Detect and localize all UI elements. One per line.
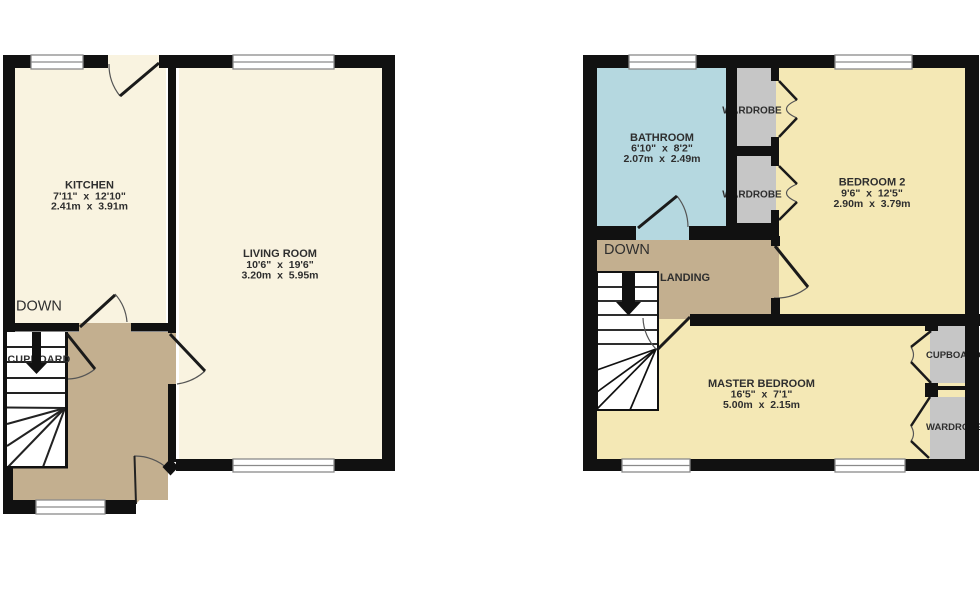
svg-text:2.41m x 3.91m: 2.41m x 3.91m: [51, 201, 128, 213]
svg-text:DOWN: DOWN: [16, 299, 62, 315]
svg-text:2.90m x 3.79m: 2.90m x 3.79m: [833, 198, 910, 210]
svg-text:LANDING: LANDING: [660, 272, 710, 284]
svg-text:2.07m x 2.49m: 2.07m x 2.49m: [623, 153, 700, 165]
svg-text:DOWN: DOWN: [604, 242, 650, 258]
svg-text:3.20m x 5.95m: 3.20m x 5.95m: [241, 270, 318, 282]
svg-text:5.00m x 2.15m: 5.00m x 2.15m: [723, 399, 800, 411]
